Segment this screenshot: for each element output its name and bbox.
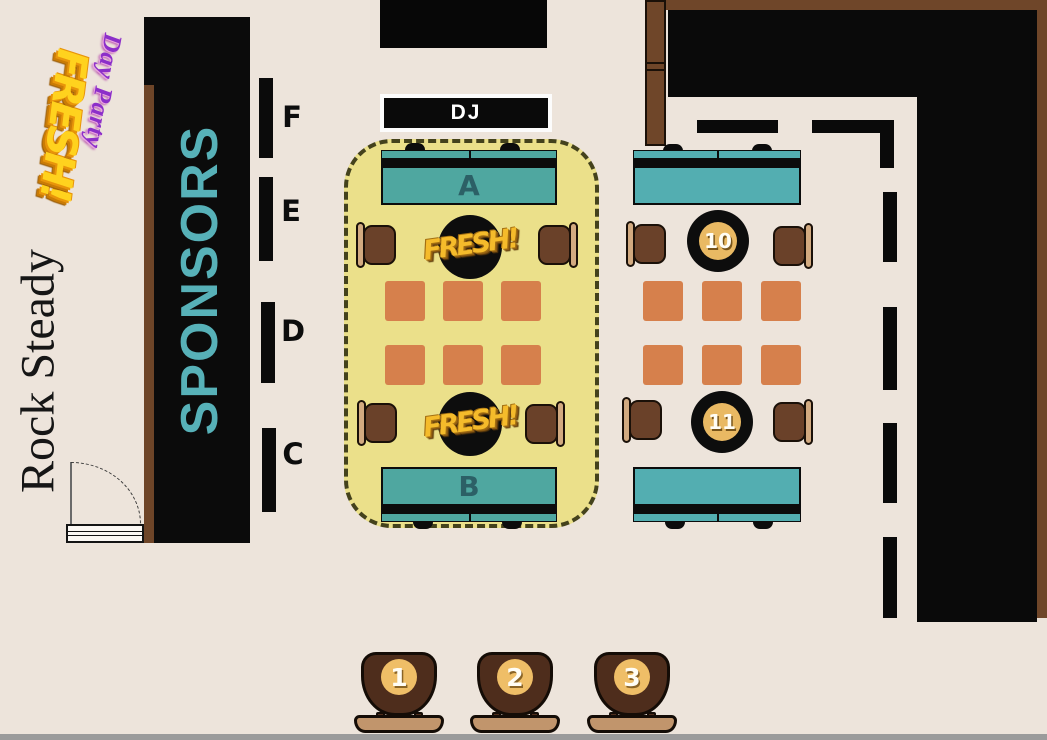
- table-a-bench: [381, 150, 557, 159]
- sponsors-banner-label: SPONSORS: [170, 125, 230, 436]
- floor-edge-bottom: [0, 734, 1047, 740]
- wood-beam-right: [1037, 0, 1047, 618]
- wall-dash: [883, 537, 897, 618]
- sponsors-banner-wood-trim: [144, 85, 154, 543]
- seat-cushion: [761, 281, 801, 321]
- chair: [771, 399, 813, 445]
- chair: [622, 397, 664, 443]
- chair: [356, 222, 398, 268]
- podium-base: [470, 715, 560, 733]
- stage-block: [380, 0, 547, 48]
- seat-cushion: [443, 345, 483, 385]
- chair-bump: [665, 522, 685, 529]
- table-b-top: B: [381, 467, 557, 506]
- wall-label-c: C: [282, 437, 303, 471]
- chair-bump: [753, 522, 773, 529]
- table-a-edge: [381, 159, 557, 166]
- seat-cushion: [501, 281, 541, 321]
- chair: [771, 223, 813, 269]
- wall-bar-c: [262, 428, 276, 512]
- table-10-edge: [633, 159, 801, 166]
- table-10-marker-label: 10: [699, 222, 737, 260]
- table-b-label: B: [458, 470, 479, 503]
- chair-bump: [405, 143, 425, 150]
- table-10-bench: [633, 150, 801, 159]
- seat-cushion: [643, 345, 683, 385]
- table-b-bench: [381, 513, 557, 522]
- podium-2[interactable]: 2: [470, 652, 560, 734]
- table-b-edge: [381, 506, 557, 513]
- wall-label-e: E: [281, 194, 301, 228]
- wall-bar-f: [259, 78, 273, 158]
- podium-3-label: 3: [614, 659, 650, 695]
- table-10-marker[interactable]: 10: [687, 210, 749, 272]
- wall-dash: [883, 192, 897, 262]
- table-a[interactable]: A: [381, 150, 557, 205]
- dj-booth-label: DJ: [451, 101, 482, 125]
- table-10-top: [633, 166, 801, 205]
- wall-top-right: [668, 10, 1037, 97]
- seat-cushion: [385, 281, 425, 321]
- podium-base: [587, 715, 677, 733]
- wall-label-d: D: [281, 314, 305, 348]
- table-11-top: [633, 467, 801, 506]
- wall-dash: [883, 423, 897, 503]
- wall-bar-e: [259, 177, 273, 261]
- seat-cushion: [643, 281, 683, 321]
- wood-door-post: [645, 0, 666, 146]
- wood-beam-top: [666, 0, 1047, 10]
- table-a-label: A: [458, 169, 480, 202]
- table-11[interactable]: [633, 467, 801, 522]
- table-11-marker-label: 11: [703, 403, 741, 441]
- table-a-top: A: [381, 166, 557, 205]
- chair: [523, 401, 565, 447]
- chair: [357, 400, 399, 446]
- seat-cushion: [501, 345, 541, 385]
- podium-1-label: 1: [381, 659, 417, 695]
- wall-label-f: F: [282, 100, 302, 134]
- wall-dash: [697, 120, 778, 133]
- seat-cushion: [702, 345, 742, 385]
- table-10[interactable]: [633, 150, 801, 205]
- chair: [626, 221, 668, 267]
- seat-cushion: [761, 345, 801, 385]
- entrance-door-threshold: [66, 524, 144, 543]
- dj-booth[interactable]: DJ: [380, 94, 552, 132]
- wall-right: [917, 97, 1037, 622]
- wall-dash: [883, 307, 897, 390]
- podium-base: [354, 715, 444, 733]
- seat-cushion: [443, 281, 483, 321]
- wall-bar-d: [261, 302, 275, 383]
- wall-dash: [880, 120, 894, 168]
- venue-name: Rock Steady: [11, 249, 66, 493]
- table-b[interactable]: B: [381, 467, 557, 522]
- chair: [536, 222, 578, 268]
- seat-cushion: [702, 281, 742, 321]
- table-11-edge: [633, 506, 801, 513]
- seat-cushion: [385, 345, 425, 385]
- table-11-marker[interactable]: 11: [691, 391, 753, 453]
- entrance-door-swing-arc: [71, 462, 141, 524]
- floor-plan: FRESH! Day Party Rock Steady SPONSORS F …: [0, 0, 1047, 740]
- sponsors-banner[interactable]: SPONSORS: [144, 17, 250, 543]
- podium-1[interactable]: 1: [354, 652, 444, 734]
- table-11-bench: [633, 513, 801, 522]
- chair-bump: [500, 143, 520, 150]
- podium-2-label: 2: [497, 659, 533, 695]
- podium-3[interactable]: 3: [587, 652, 677, 734]
